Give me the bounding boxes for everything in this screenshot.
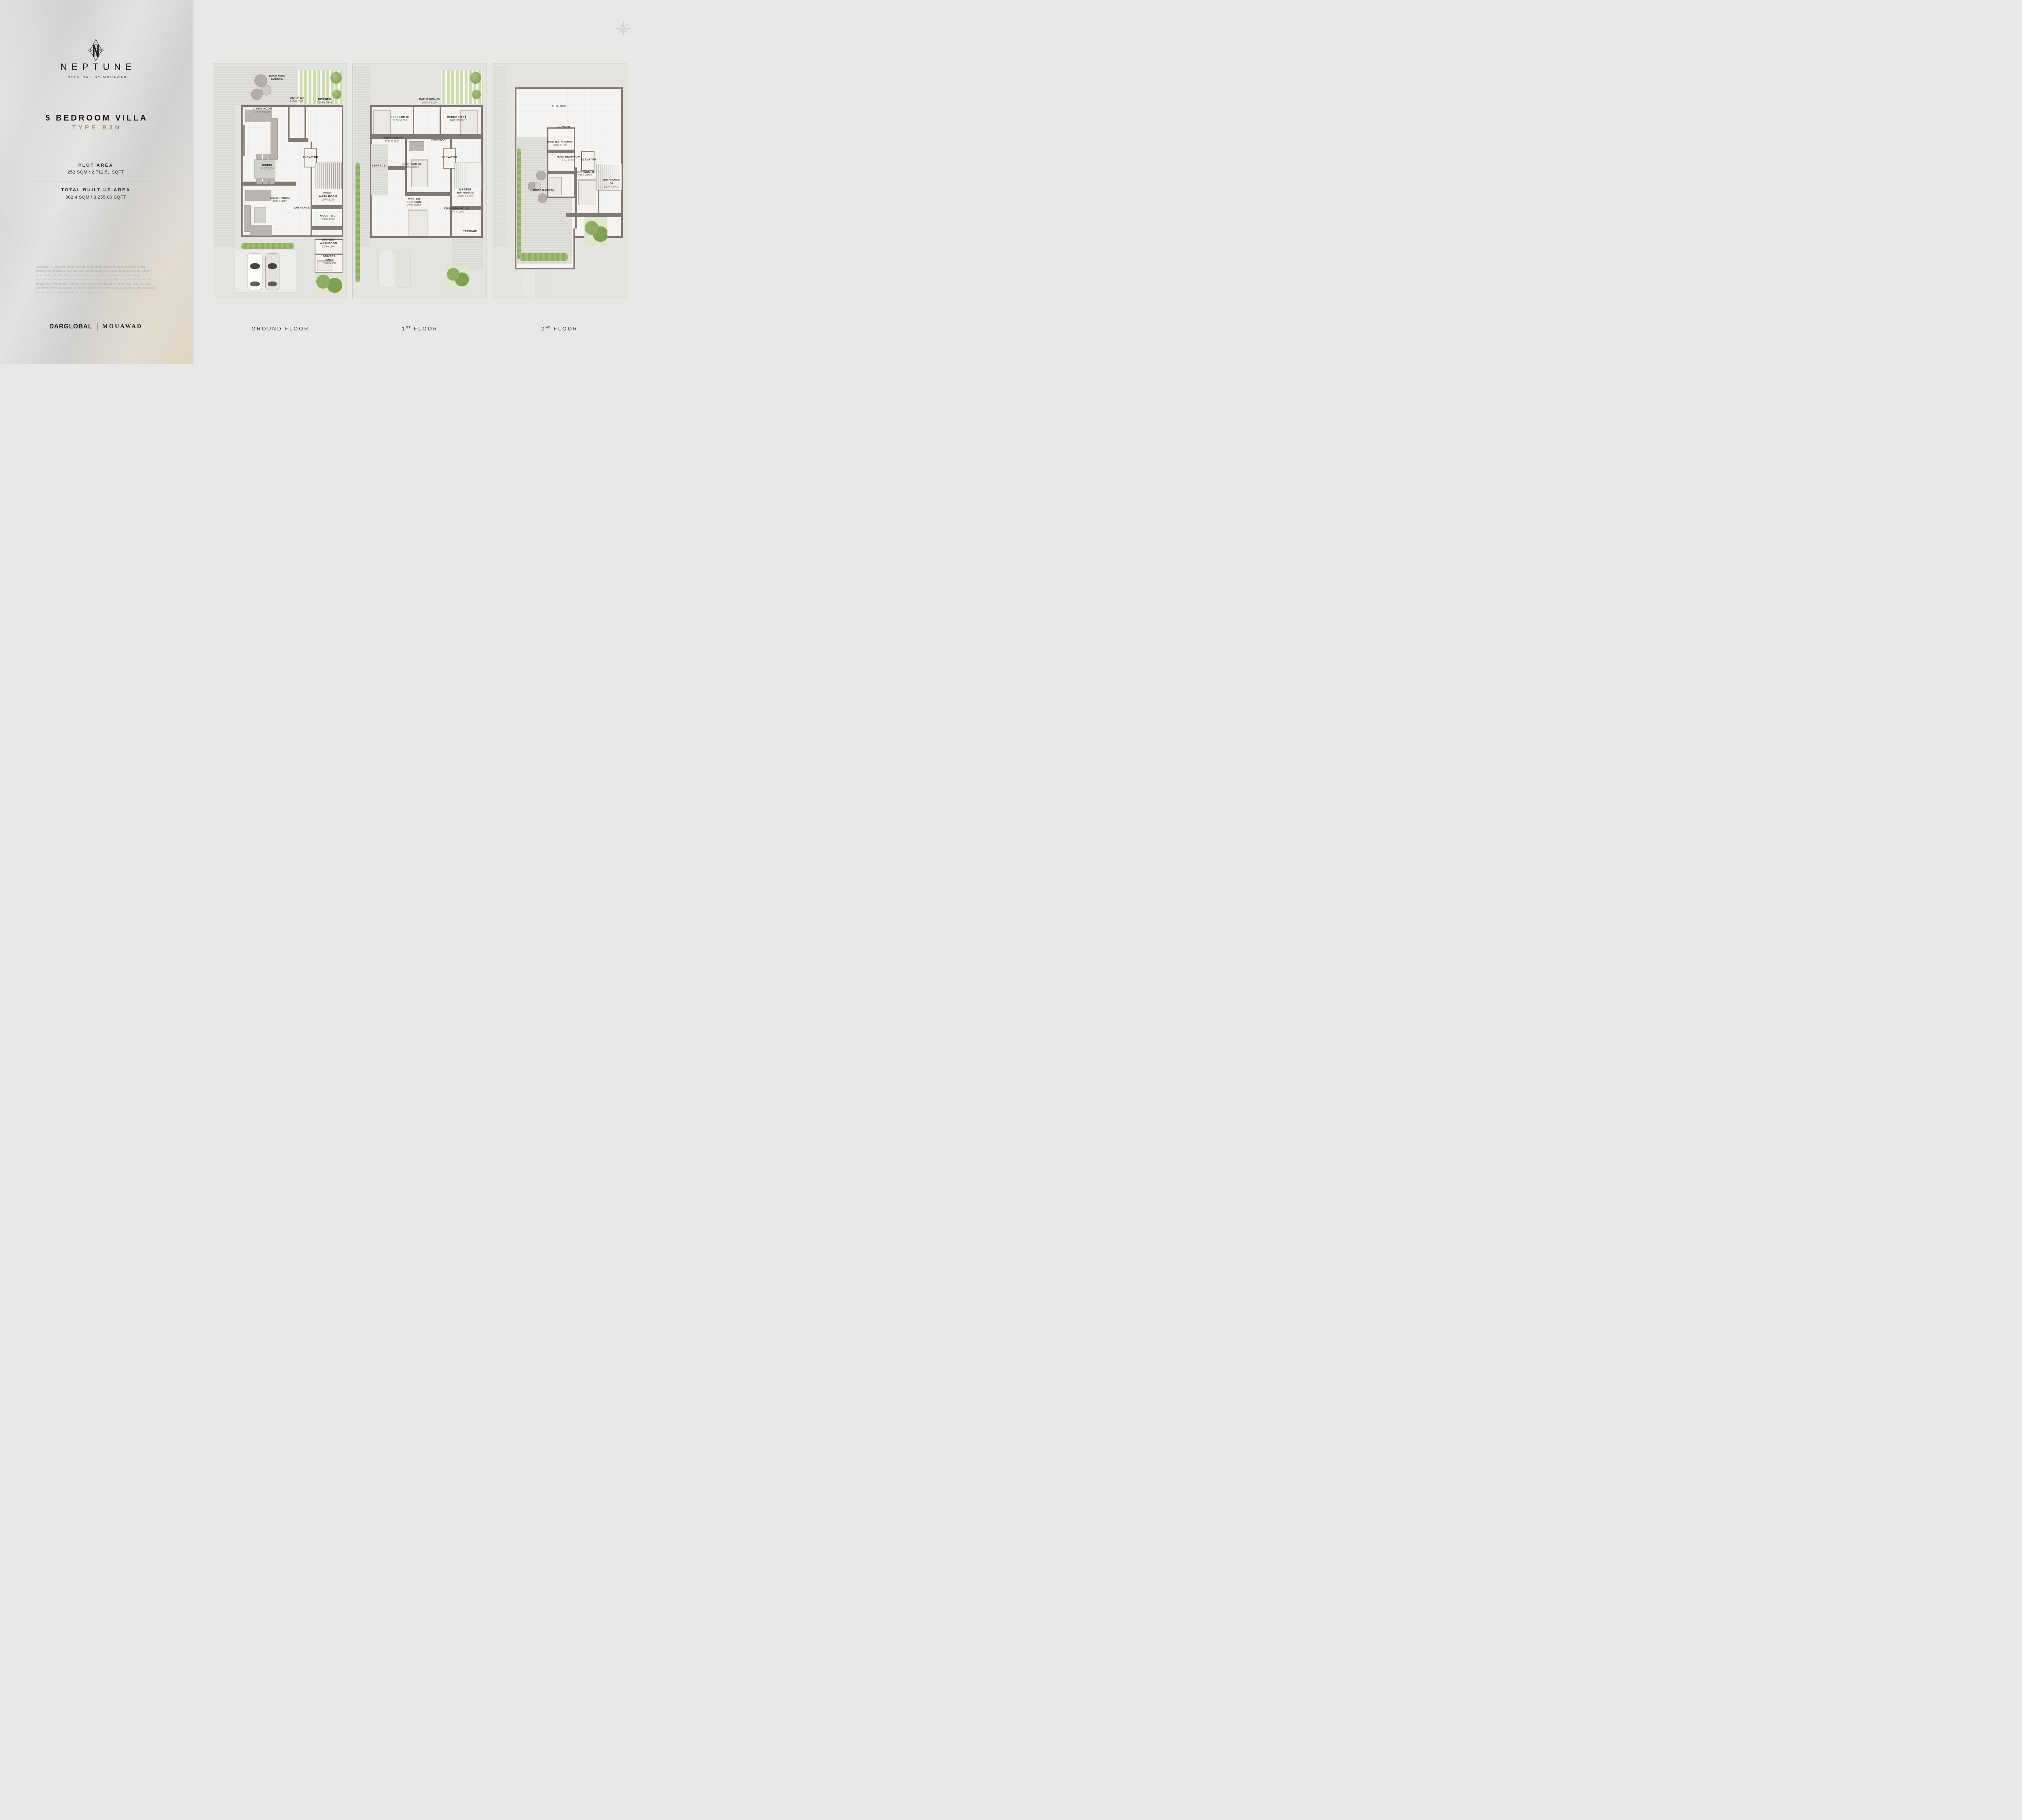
car-rear-window: [268, 281, 277, 286]
room-label: UTILITIES: [552, 104, 566, 108]
brand-tagline: INTERIORS BY MOUAWAD: [0, 75, 192, 79]
interior-wall: [312, 226, 343, 230]
room-label: BEDROOM 043600 X3550: [447, 116, 466, 123]
room-label: MAID BATH ROOM2000 X1150: [547, 140, 573, 147]
planting-patch: [584, 217, 607, 245]
room-label: GUEST WASH ROOM2100X2150: [319, 192, 337, 202]
ghost-car: [523, 271, 536, 297]
interior-wall: [305, 105, 306, 142]
planting-patch: [446, 265, 469, 288]
interior-wall: [405, 192, 452, 196]
car-windshield: [268, 263, 277, 269]
room-label: TERRACE: [463, 230, 477, 234]
planter-row: [520, 253, 568, 261]
darglobal-logo: DARGLOBAL: [49, 323, 92, 330]
interior-wall: [413, 105, 415, 137]
car: [265, 253, 279, 290]
room-label: LAUNDRY: [557, 126, 571, 129]
interior-wall: [440, 105, 441, 137]
room-label: DRIVERS WASHROOM2100X1300: [319, 239, 338, 249]
ground-floor-caption: GROUND FLOOR: [213, 326, 347, 332]
bed: [373, 110, 391, 134]
ghost-car: [538, 271, 550, 297]
room-label: ELEVATOR: [303, 156, 318, 160]
dining-chair: [263, 154, 269, 160]
lounge-chair: [538, 193, 548, 203]
caption-text: FLOOR: [551, 326, 578, 332]
neptune-monogram-icon: [88, 38, 104, 62]
room-label: ELEVATOR: [442, 156, 457, 160]
brand-name: NEPTUNE: [0, 61, 192, 72]
neptune-logo: [0, 38, 192, 64]
second-floor-plan: UTILITIESLAUNDRYMAID BATH ROOM2000 X1150…: [492, 64, 626, 299]
room-label: CORRIDOR: [431, 139, 446, 142]
ghost-car: [379, 251, 394, 288]
room-label: DRIVERS ROOM2100X2650: [321, 255, 338, 265]
disclaimer-text: Disclaimer: All pictures, plans, layouts…: [36, 265, 156, 295]
sidebar: NEPTUNE INTERIORS BY MOUAWAD 5 BEDROOM V…: [0, 0, 192, 364]
room-label: BACKYARD GARDEN: [264, 74, 290, 81]
unit-type: TYPE B3N: [0, 125, 192, 131]
caption-text: FLOOR: [411, 326, 438, 332]
maid-bed: [550, 177, 562, 195]
room-label: BEDROOM 024050 X5600: [402, 163, 421, 169]
room-label: TERRACE: [372, 164, 385, 168]
interior-wall: [288, 138, 308, 142]
car-rear-window: [250, 281, 260, 286]
caption-text: 2: [541, 326, 545, 332]
side-table: [534, 182, 541, 189]
dining-chair: [256, 154, 262, 160]
caption-superscript: ND: [546, 326, 551, 329]
built-up-area-value: 302.4 SQM / 3,255.00 SQFT: [0, 195, 192, 200]
room-label: BATHROOM 022700 X 1800: [382, 137, 402, 144]
hedge-row: [241, 243, 294, 249]
interior-wall: [241, 182, 296, 186]
desk: [409, 141, 424, 151]
room-label: DINING6000X2800: [260, 164, 274, 171]
outdoor-table: [261, 85, 271, 95]
room-label: BATHROOM 032000 X 2150: [419, 98, 440, 105]
staircase: [315, 163, 342, 189]
caption-text: 1: [402, 326, 406, 332]
room-label: GUEST WC2100X1950: [320, 214, 336, 221]
guest-room-table: [254, 207, 266, 223]
room-label: LIVING ROOM3700 X 5220: [253, 108, 272, 114]
staircase: [455, 163, 481, 189]
room-label: ROOF GARDEN: [533, 189, 554, 193]
sidebar-edge-shadow: [192, 0, 194, 364]
planting-patch: [315, 274, 343, 293]
room-label: KITCHEN3050 X 3550: [317, 98, 332, 105]
side-deck: [493, 66, 507, 247]
side-deck: [214, 66, 235, 247]
built-up-area-label: TOTAL BUILT UP AREA: [0, 188, 192, 193]
interior-wall: [288, 105, 290, 142]
caption-superscript: ST: [406, 326, 411, 329]
room-label: MASTER BEDROOM4750 X3950: [401, 197, 427, 207]
divider-line: [36, 209, 155, 209]
room-label: MAID BEDROOM1950 X2000: [557, 156, 580, 163]
master-bed: [408, 210, 427, 235]
room-label: ELEVATOR: [581, 159, 596, 162]
terrace-deck: [371, 144, 388, 196]
mouawad-logo: MOUAWAD: [102, 323, 142, 330]
ground-floor-plan: BACKYARD GARDENLIVING ROOM3700 X 5220FAM…: [213, 64, 347, 299]
dining-chair: [269, 154, 275, 160]
car: [247, 253, 262, 290]
guest-room-sofa: [250, 225, 272, 236]
room-label: ENTRANCE: [294, 207, 310, 210]
plot-area-value: 252 SQM / 2,712.51 SQFT: [0, 170, 192, 175]
room-label: FAMILY WC1450X1600: [289, 97, 305, 104]
footer-logos: DARGLOBAL MOUAWAD: [0, 323, 192, 330]
lounge-chair: [536, 171, 546, 180]
room-label: GUEST ROOM4100 X 4750: [270, 197, 290, 204]
planter-row: [517, 148, 521, 259]
dining-chair: [256, 179, 262, 185]
room-label: MASTER BATHROOM2950 X 1650: [455, 188, 476, 198]
first-floor-caption: 1ST FLOOR: [353, 326, 486, 332]
garden-tree: [332, 90, 341, 99]
room-label: BEDROOM 033500 X3550: [391, 116, 410, 123]
car-windshield: [250, 263, 260, 269]
room-label: BATHROOM 041600 X 2800: [603, 179, 620, 189]
ghost-car: [397, 251, 411, 288]
compass-rose-icon: [615, 21, 631, 36]
plot-area-label: PLOT AREA: [0, 163, 192, 168]
room-label: BEDROOM 052950 X3000: [575, 171, 594, 178]
room-label: DRESSING ROOM4400 X 1750: [444, 207, 469, 214]
second-floor-caption: 2ND FLOOR: [492, 326, 626, 332]
caption-text: GROUND: [252, 326, 282, 332]
dining-chair: [269, 179, 275, 185]
interior-wall: [312, 205, 343, 209]
bed: [578, 179, 596, 205]
tv-unit: [242, 125, 245, 156]
hedge-column: [355, 163, 360, 282]
unit-title: 5 BEDROOM VILLA: [0, 114, 192, 123]
garden-tree: [472, 90, 480, 99]
first-floor-plan: BEDROOM 033500 X3550BATHROOM 032000 X 21…: [353, 64, 486, 299]
divider-line: [36, 182, 155, 182]
interior-wall: [547, 171, 575, 174]
caption-text: FLOOR: [282, 326, 309, 332]
guest-room-sofa: [245, 190, 271, 201]
interior-wall: [547, 150, 575, 153]
brochure-page: NEPTUNE INTERIORS BY MOUAWAD 5 BEDROOM V…: [0, 0, 647, 364]
dining-chair: [263, 179, 269, 185]
logo-separator: [97, 323, 97, 330]
